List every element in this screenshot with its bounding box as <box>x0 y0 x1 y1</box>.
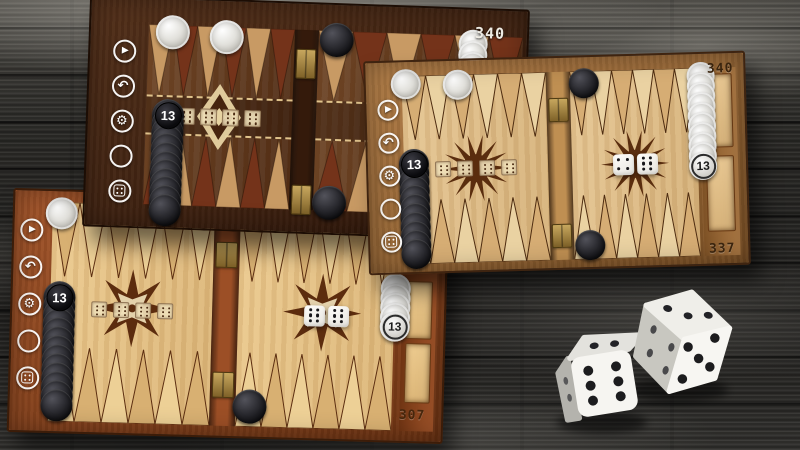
undo-button[interactable]: ↶ <box>18 255 42 279</box>
undo-arrow-icon: ↶ <box>25 260 36 273</box>
brass-hinge <box>291 185 312 216</box>
engraved-die <box>435 161 451 177</box>
undo-button[interactable]: ↶ <box>378 132 400 154</box>
play-button[interactable]: ▶ <box>20 218 44 242</box>
play-icon: ▶ <box>385 105 392 114</box>
settings-button[interactable]: ⚙ <box>17 292 41 316</box>
engraved-die <box>221 109 239 127</box>
undo-arrow-icon: ↶ <box>117 79 128 92</box>
play-button[interactable]: ▶ <box>112 39 136 63</box>
checker-count-badge: 13 <box>154 101 182 129</box>
brass-hinge <box>552 224 573 249</box>
brass-hinge <box>295 49 316 80</box>
engraved-die <box>135 302 151 318</box>
gear-icon: ⚙ <box>116 114 128 127</box>
undo-arrow-icon: ↶ <box>383 136 394 149</box>
play-icon: ▶ <box>29 225 36 234</box>
engraved-die <box>457 160 473 176</box>
pip-score: 307 <box>399 408 426 424</box>
checker-black[interactable] <box>311 185 346 220</box>
gear-icon: ⚙ <box>23 297 35 310</box>
checker-black[interactable] <box>401 239 432 270</box>
gear-icon: ⚙ <box>383 169 395 182</box>
pip-score: 340 <box>707 61 734 77</box>
moves-button[interactable] <box>379 198 401 220</box>
dice-button[interactable] <box>380 231 402 253</box>
board-oak-theme: ▶↶⚙1313340337 <box>363 51 751 276</box>
brass-hinge <box>215 242 238 269</box>
rolled-die[interactable] <box>636 153 658 175</box>
engraved-die <box>199 108 217 126</box>
rolled-dice-photo <box>540 282 772 444</box>
checker-count-badge: 13 <box>46 283 74 311</box>
rolled-die[interactable] <box>327 305 349 327</box>
bear-off-tray[interactable] <box>404 343 432 404</box>
checker-count-badge: 13 <box>400 150 428 178</box>
moves-button[interactable] <box>109 144 133 168</box>
ornament-sun <box>598 127 672 201</box>
dice-icon <box>113 184 125 196</box>
dice-button[interactable] <box>107 179 131 203</box>
checker-count-badge: 13 <box>690 153 716 179</box>
pip-score: 340 <box>475 24 506 43</box>
undo-button[interactable]: ↶ <box>111 74 135 98</box>
engraved-die <box>243 109 261 127</box>
points-row[interactable] <box>402 72 548 140</box>
dice-icon <box>21 371 33 383</box>
checker-count-badge: 13 <box>382 314 408 340</box>
settings-button[interactable]: ⚙ <box>110 109 134 133</box>
engraved-die <box>91 301 107 317</box>
settings-button[interactable]: ⚙ <box>378 165 400 187</box>
moves-button[interactable] <box>16 329 40 353</box>
rolled-die[interactable] <box>303 305 325 327</box>
brass-hinge <box>212 372 235 399</box>
dice-icon <box>385 235 397 247</box>
brass-hinge <box>548 98 569 123</box>
checker-black[interactable] <box>148 193 181 226</box>
rolled-die[interactable] <box>612 153 634 175</box>
engraved-die <box>113 302 129 318</box>
engraved-die <box>501 159 517 175</box>
pip-score: 337 <box>709 241 736 257</box>
dice-button[interactable] <box>15 366 39 390</box>
play-icon: ▶ <box>122 46 129 55</box>
play-button[interactable]: ▶ <box>377 99 399 121</box>
engraved-die <box>479 160 495 176</box>
engraved-die <box>157 303 173 319</box>
